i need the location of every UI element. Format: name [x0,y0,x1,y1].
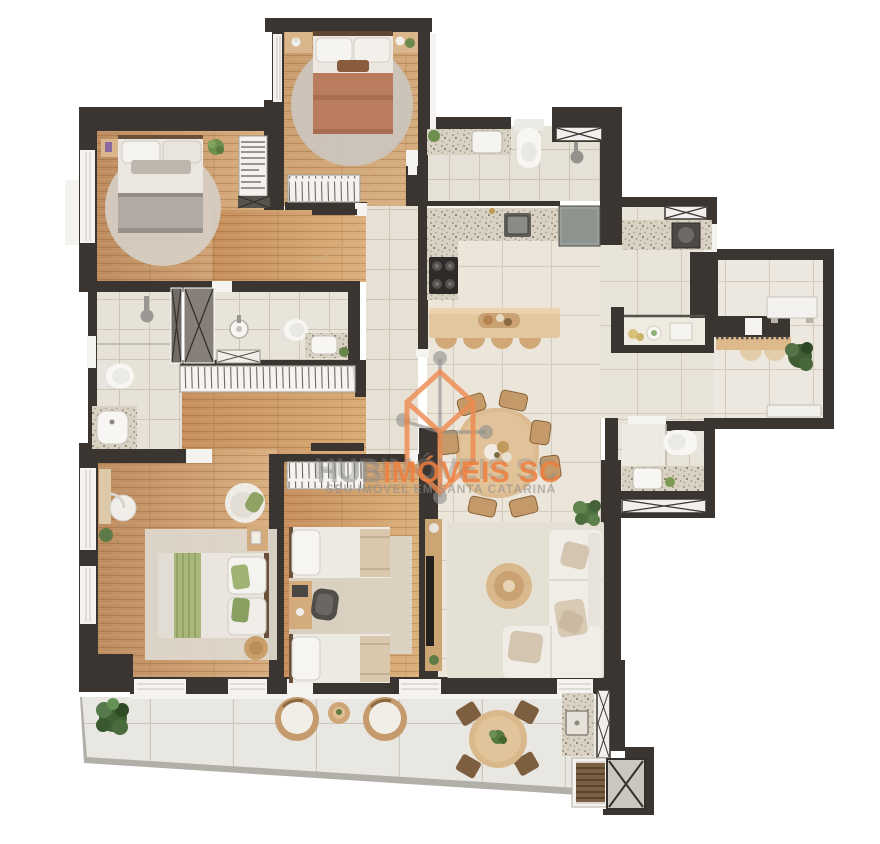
svg-text:SEU IMÓVEL EM SANTA CATARINA: SEU IMÓVEL EM SANTA CATARINA [326,481,557,496]
